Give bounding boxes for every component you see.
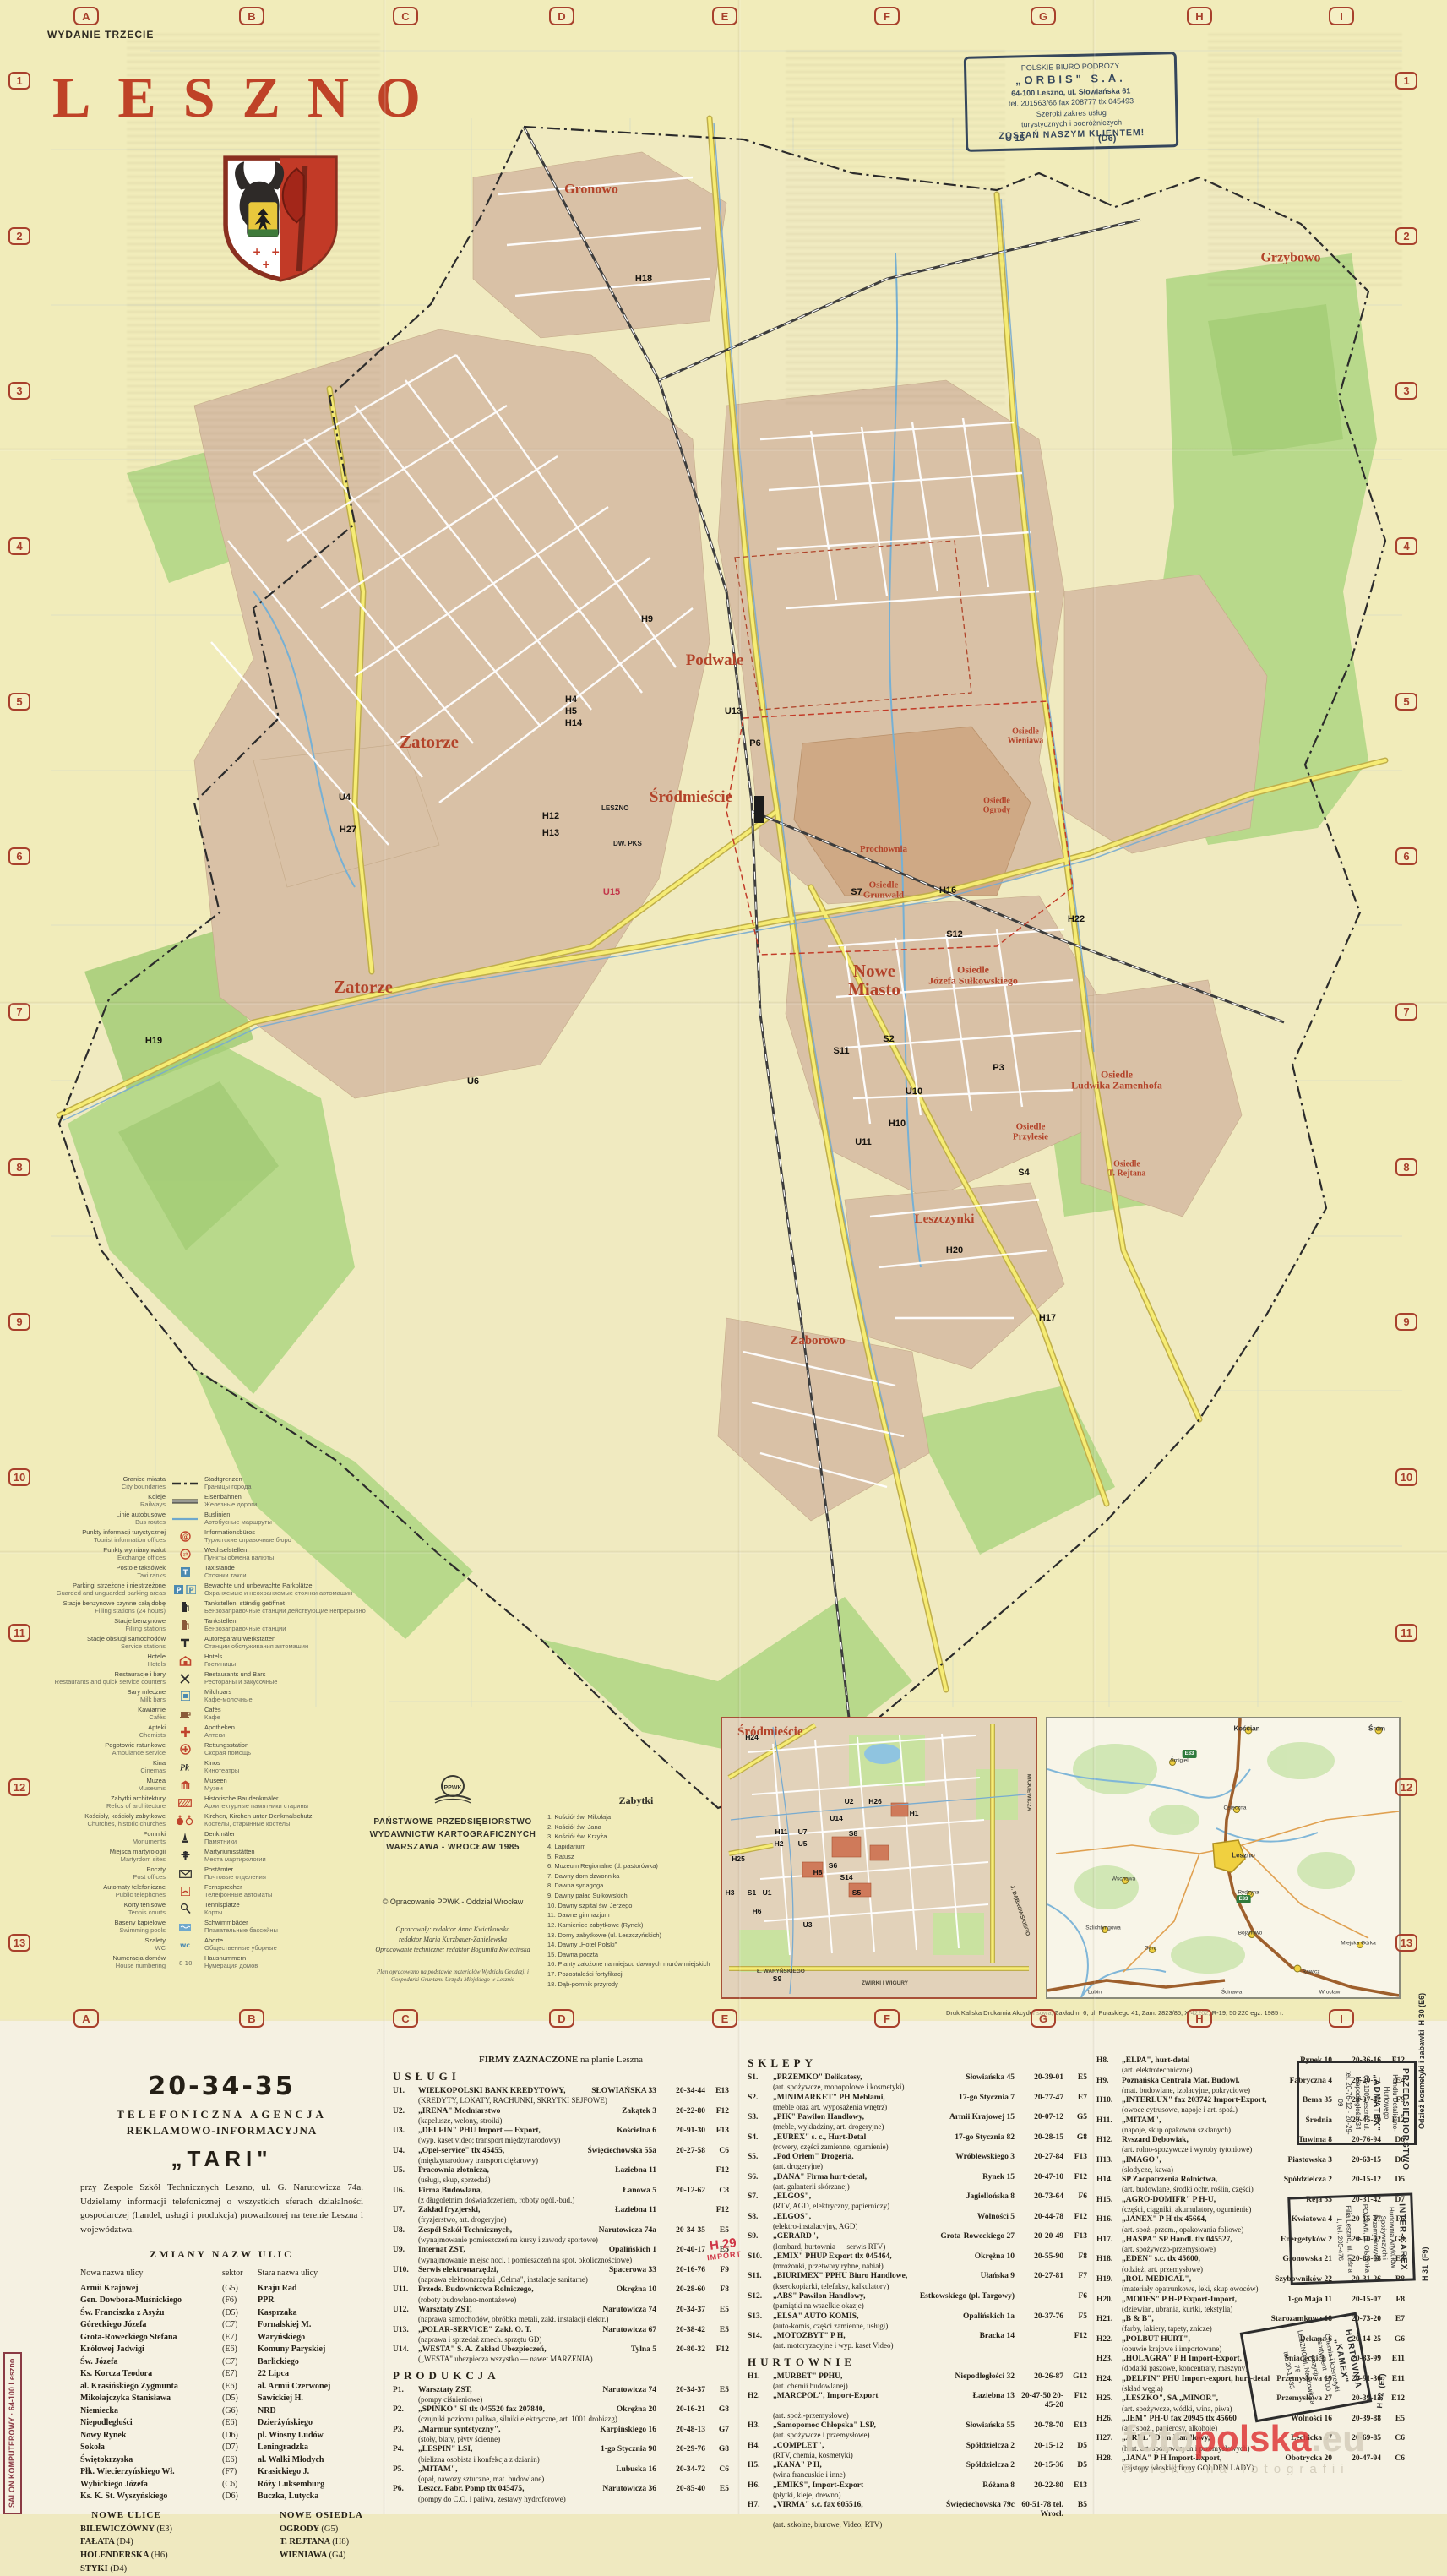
- entry-name: „IRENA" Modniarstwo: [418, 2107, 500, 2116]
- entry-phone: [1015, 2292, 1063, 2301]
- directory-entry-U14: U14.„WESTA" S. A. Zakład Ubezpieczeń,Tyl…: [393, 2345, 729, 2364]
- source-note: Plan opracowano na podstawie materiałów …: [365, 1969, 541, 1985]
- entry-grid-ref: C6: [1381, 2434, 1405, 2443]
- svg-text:PPWK: PPWK: [444, 1785, 462, 1791]
- entry-code: H19.: [1096, 2275, 1122, 2285]
- inset-marker-S1: S1: [748, 1888, 756, 1897]
- museum-icon: [166, 1780, 204, 1789]
- poi-marker-S2: S2: [883, 1034, 894, 1044]
- legend-row: Linie autobusoweBus routesBuslinienАвтоб…: [49, 1510, 380, 1528]
- tari-column: 20-34-35 TELEFONICZNA AGENCJA REKLAMOWO-…: [80, 2021, 363, 2576]
- legend-row: Stacje benzynowe czynne całą dobęFilling…: [49, 1598, 380, 1616]
- poi-marker-H9: H9: [641, 614, 653, 624]
- entry-phone: 20-39-01: [1015, 2073, 1063, 2083]
- tari-name: „TARI": [80, 2146, 363, 2172]
- credit-line: redaktor Maria Kurzbauer-Zanielewska: [365, 1935, 541, 1945]
- legend-row: Baseny kąpieloweSwimming poolsSchwimmbäd…: [49, 1918, 380, 1936]
- sector-ref: (F6): [222, 2295, 258, 2307]
- poi-marker-H17: H17: [1039, 1313, 1056, 1323]
- entry-code: P6.: [393, 2485, 418, 2494]
- sector-ref: (E6): [222, 2344, 258, 2356]
- entry-address: Estkowskiego (pl. Targowy): [915, 2292, 1015, 2301]
- sector-ref: (E6): [222, 2417, 258, 2430]
- district-label: Osiedle T. Rejtana: [1108, 1161, 1146, 1179]
- entry-head: U9.Internat ZST,Opalińskich 120-40-17E5: [393, 2246, 729, 2255]
- entry-code: U4.: [393, 2147, 418, 2156]
- inset-marker-S6: S6: [829, 1861, 837, 1870]
- legend-label-de-ru: HotelsГостиницы: [204, 1653, 380, 1668]
- edition-label: WYDANIE TRZECIE: [47, 29, 154, 41]
- entry-head: U1.WIELKOPOLSKI BANK KREDYTOWY,SŁOWIAŃSK…: [393, 2087, 729, 2096]
- new-estates-header: NOWE OSIEDLA: [280, 2510, 363, 2520]
- entry-head: U4.„Opel-service" tlx 45455,Święciechows…: [393, 2147, 729, 2156]
- district-label: Grzybowo: [1260, 252, 1320, 266]
- new-street-name: Św. Józefa: [80, 2356, 222, 2369]
- entry-description: (międzynarodowy transport ciężarowy): [393, 2156, 729, 2165]
- grid-number-13: 13: [1395, 1934, 1417, 1952]
- entry-name: Pracownia złotnicza,: [418, 2166, 489, 2176]
- entry-address: Narutowicza 74a: [594, 2226, 656, 2236]
- entry-grid-ref: C8: [705, 2187, 729, 2196]
- sector-ref: (G6): [222, 2405, 258, 2418]
- monument-item: 5. Ratusz: [547, 1852, 725, 1862]
- column-header: Nowa nazwa ulicy: [80, 2268, 222, 2280]
- entry-grid-ref: E11: [1381, 2355, 1405, 2364]
- entry-code: S8.: [748, 2213, 773, 2222]
- entry-name: „ELGOS",: [773, 2192, 811, 2202]
- entry-description: (RTV, chemia, kosmetyki): [748, 2451, 1087, 2459]
- entry-description: (rowery, części zamienne, ogumienie): [748, 2143, 1087, 2151]
- sector-ref: (C7): [222, 2356, 258, 2369]
- entry-phone: 20-20-49: [1015, 2232, 1063, 2241]
- grid-number-12: 12: [1395, 1778, 1417, 1796]
- legend-row: PocztyPost officesPostämterПочтовые отде…: [49, 1865, 380, 1882]
- legend-label-pl-en: KinaCinemas: [49, 1760, 166, 1774]
- entry-address: Łaziebna 13: [968, 2392, 1015, 2410]
- entry-grid-ref: D5: [1381, 2176, 1405, 2185]
- grid-letter-A: A: [73, 7, 99, 25]
- grid-number-3: 3: [1395, 382, 1417, 400]
- poi-marker-U4: U4: [339, 792, 351, 803]
- entry-grid-ref: E5: [1063, 2073, 1087, 2083]
- new-item: WIENIAWA (G4): [280, 2549, 363, 2562]
- entry-grid-ref: F12: [1063, 2173, 1087, 2182]
- entry-address: Spacerowa 33: [604, 2266, 656, 2275]
- new-item: OGRODY (G5): [280, 2523, 363, 2536]
- legend-label-de-ru: MilchbarsКафе-молочные: [204, 1689, 380, 1703]
- directory-entry-P6: P6.Leszcz. Fabr. Pomp tlx 045475,Narutow…: [393, 2485, 729, 2503]
- poi-marker-S12: S12: [946, 929, 963, 939]
- monument-item: 18. Dąb-pomnik przyrody: [547, 1980, 725, 1990]
- old-street-name: PPR: [258, 2295, 363, 2307]
- district-label: Zaborowo: [790, 1335, 846, 1348]
- entry-name: „Opel-service" tlx 45455,: [418, 2147, 504, 2156]
- monument-item: 16. Planty założone na miejscu dawnych m…: [547, 1959, 725, 1969]
- legend-label-de-ru: Tankstellen, ständig geöffnetБензозаправ…: [204, 1600, 380, 1615]
- svg-text:+: +: [271, 245, 280, 258]
- legend-label-pl-en: Zabytki architekturyRelics of architectu…: [49, 1795, 166, 1810]
- orbis-travel-agency-stamp: POLSKIE BIURO PODRÓŻY „ORBIS" S.A. 64-10…: [964, 52, 1178, 151]
- legend-label-de-ru: AutoreparaturwerkstättenСтанции обслужив…: [204, 1636, 380, 1650]
- entry-name: „EMIKS", Import-Export: [773, 2481, 863, 2491]
- sector-ref: (E6): [222, 2381, 258, 2394]
- legend-row: KawiarnieCafésCafésКафе: [49, 1705, 380, 1723]
- entry-head: P1.Warsztaty ZST,Narutowicza 7420-34-37E…: [393, 2386, 729, 2395]
- grid-letter-H: H: [1187, 7, 1212, 25]
- entry-phone: 20-12-62: [656, 2187, 705, 2196]
- old-street-name: Kasprzaka: [258, 2307, 363, 2320]
- street-changes-header-row: Nowa nazwa ulicysektorStara nazwa ulicy: [80, 2268, 363, 2280]
- milkbar-icon: [166, 1691, 204, 1701]
- monument-item: 17. Pozostałości fortyfikacji: [547, 1969, 725, 1980]
- entry-description: (art. spożywcze i przemysłowe): [748, 2431, 1087, 2439]
- legend-label-pl-en: Stacje benzynowe czynne całą dobęFilling…: [49, 1600, 166, 1615]
- entry-description: („WESTA" ubezpiecza wszystko — nawet MAR…: [393, 2355, 729, 2363]
- entry-address: Jagiellońska 8: [961, 2192, 1015, 2202]
- martyr-icon: [166, 1850, 204, 1861]
- town-label-Ścinawa: Ścinawa: [1221, 1990, 1243, 1996]
- church-icon: [166, 1815, 204, 1826]
- street-change-row: Świętokrzyska(E6)al. Walki Młodych: [80, 2454, 363, 2467]
- entry-code: H24.: [1096, 2375, 1122, 2384]
- pump24-icon: [166, 1602, 204, 1613]
- town-label-Wrocław: Wrocław: [1319, 1990, 1341, 1996]
- entry-phone: 20-29-76: [656, 2445, 705, 2454]
- directory-entry-H27: H27.„AREL" Dom Handlowy,Lechicka 5720-69…: [1096, 2434, 1405, 2453]
- entry-name: „INTERLUX" fax 203742 Import-Export,: [1122, 2096, 1267, 2105]
- entry-name: „ELSA" AUTO KOMIS,: [773, 2312, 858, 2322]
- legend-label-de-ru: BuslinienАвтобусные маршруты: [204, 1511, 380, 1526]
- entry-head: S6.„DANA" Firma hurt-detal,Rynek 1520-47…: [748, 2173, 1087, 2182]
- entry-address: Narutowicza 74: [597, 2306, 656, 2315]
- directory-entry-S8: S8.„ELGOS",Wolności 520-44-78F12(elektro…: [748, 2213, 1087, 2231]
- entry-name: „PIK" Pawilon Handlowy,: [773, 2113, 864, 2122]
- pool-icon: [166, 1924, 204, 1931]
- monument-item: 15. Dawna poczta: [547, 1950, 725, 1960]
- street-change-row: Mikołajczyka Stanisława(D5)Sawickiej H.: [80, 2393, 363, 2405]
- entry-head: H20.„MODES" P H-P Export-Import,1-go Maj…: [1096, 2296, 1405, 2305]
- entry-code: U14.: [393, 2345, 418, 2355]
- entry-phone: [656, 2166, 705, 2176]
- monument-item: 14. Dawny „Hotel Polski": [547, 1940, 725, 1950]
- old-street-name: al. Walki Młodych: [258, 2454, 363, 2467]
- entry-name: „AGRO-DOMIFR" P H-U,: [1122, 2196, 1216, 2205]
- entry-grid-ref: E5: [705, 2485, 729, 2494]
- entry-name: „PRZEMKO" Delikatesy,: [773, 2073, 862, 2083]
- entry-phone: 20-34-37: [656, 2306, 705, 2315]
- entry-phone: 20-16-76: [656, 2266, 705, 2275]
- legend-label-pl-en: MuzeaMuseums: [49, 1778, 166, 1792]
- entry-code: H28.: [1096, 2454, 1122, 2464]
- legend-label-pl-en: Granice miastaCity boundaries: [49, 1476, 166, 1490]
- old-street-name: Sawickiej H.: [258, 2393, 363, 2405]
- new-item: FAŁATA (D4): [80, 2535, 172, 2549]
- entry-phone: 20-39-88: [1332, 2415, 1381, 2424]
- entry-code: U3.: [393, 2127, 418, 2136]
- entry-code: S5.: [748, 2153, 773, 2162]
- entry-grid-ref: F13: [705, 2127, 729, 2136]
- housenum-icon: 8 10: [166, 1959, 204, 1966]
- town-label-Kościan: Kościan: [1233, 1725, 1259, 1733]
- legend-label-de-ru: AborteОбщественные уборные: [204, 1937, 380, 1952]
- tari-subtitle: REKLAMOWO-INFORMACYJNA: [80, 2124, 363, 2138]
- entry-description: (pompy ciśnieniowe): [393, 2395, 729, 2404]
- entry-address: 17-go Stycznia 7: [954, 2094, 1015, 2103]
- town-label-Bojanowo: Bojanowo: [1238, 1931, 1263, 1936]
- shops-column: SKLEPY S1.„PRZEMKO" Delikatesy,Słowiańsk…: [748, 2021, 1087, 2530]
- grid-number-1: 1: [8, 72, 30, 90]
- entry-head: H28.„JANA" P H Import-Export,Obotrycka 2…: [1096, 2454, 1405, 2464]
- grid-letter-E: E: [712, 7, 737, 25]
- new-street-name: Św. Franciszka z Asyżu: [80, 2307, 222, 2320]
- entry-address: Narutowicza 67: [597, 2326, 656, 2335]
- entry-address: Opalińskich 1: [604, 2246, 656, 2255]
- hurtownie-header: HURTOWNIE: [748, 2355, 1087, 2369]
- entry-description: (meble, wykładziny, art. drogeryjne): [748, 2122, 1087, 2131]
- grid-letter-A: A: [73, 2009, 99, 2028]
- new-item: HOLENDERSKA (H6): [80, 2549, 172, 2562]
- entry-name: „EMIX" PHUP Export tlx 045464,: [773, 2252, 892, 2262]
- entry-phone: [1015, 2332, 1063, 2341]
- district-label: Leszczynki: [915, 1213, 975, 1227]
- poi-marker-S7: S7: [851, 887, 862, 897]
- entry-code: H4.: [748, 2442, 773, 2451]
- svg-text:@: @: [182, 1533, 188, 1540]
- firms-header: FIRMY ZAZNACZONE na planie Leszna: [393, 2055, 729, 2065]
- entry-grid-ref: F6: [1063, 2192, 1087, 2202]
- entry-description: (mrożonki, przetwory rybne, nabiał): [748, 2262, 1087, 2270]
- phone-icon: [166, 1887, 204, 1896]
- old-street-name: Róży Luksemburg: [258, 2479, 363, 2492]
- entry-address: 1-go Maja 11: [1282, 2296, 1332, 2305]
- entry-name: „ELGOS",: [773, 2213, 811, 2222]
- legend-label-de-ru: Bewachte und unbewachte ParkplätzeОхраня…: [204, 1582, 380, 1597]
- entry-code: S10.: [748, 2252, 773, 2262]
- town-label-Osieczna: Osieczna: [1223, 1805, 1246, 1811]
- entry-phone: 20-15-12: [1015, 2442, 1063, 2451]
- directory-entry-U6: U6.Firma Budowlana,Łanowa 520-12-62C8(z …: [393, 2187, 729, 2205]
- entry-grid-ref: C6: [1381, 2454, 1405, 2464]
- entry-address: Święciechowska 79c: [941, 2501, 1015, 2519]
- entry-head: S4.„EUREX" s. c., Hurt-Detal17-go Styczn…: [748, 2133, 1087, 2143]
- directory-entry-S12: S12.„ABS" Pawilon Handlowy,Estkowskiego …: [748, 2292, 1087, 2311]
- entry-description: (art. galanterii skórzanej): [748, 2182, 1087, 2191]
- monuments-title: Zabytki: [547, 1794, 725, 1807]
- wc-icon: wc: [166, 1941, 204, 1948]
- legend-label-pl-en: Automaty telefonicznePublic telephones: [49, 1884, 166, 1898]
- directory-entry-U10: U10.Serwis elektronarzędzi,Spacerowa 332…: [393, 2266, 729, 2285]
- directory-entry-S13: S13.„ELSA" AUTO KOMIS,Opalińskich 1a20-3…: [748, 2312, 1087, 2331]
- grid-number-10: 10: [1395, 1468, 1417, 1486]
- svg-text:⇄: ⇄: [182, 1551, 188, 1558]
- entry-description: (art. szkolne, biurowe, Video, RTV): [748, 2520, 1087, 2529]
- entry-description: (art. spoż., papierosy, alkohole): [1096, 2424, 1405, 2432]
- legend-row: KinaCinemasPkKinosКинотеатры: [49, 1758, 380, 1776]
- entry-code: S12.: [748, 2292, 773, 2301]
- grid-letter-G: G: [1031, 2009, 1056, 2028]
- publisher-line: WYDAWNICTW KARTOGRAFICZNYCH: [365, 1828, 541, 1841]
- entry-description: (art. spożywcze, monopolowe i kosmetyki): [748, 2083, 1087, 2091]
- rail-icon: [166, 1499, 204, 1504]
- sector-ref: (G5): [222, 2283, 258, 2296]
- legend-row: Kościoły, kościoły zabytkoweChurches, hi…: [49, 1811, 380, 1829]
- directory-entry-H26: H26.„JEM" PH-U fax 20945 tlx 45660Wolnoś…: [1096, 2415, 1405, 2433]
- entry-code: H13.: [1096, 2156, 1122, 2165]
- inset-marker-H26: H26: [868, 1797, 882, 1805]
- entry-grid-ref: G8: [705, 2405, 729, 2415]
- inset-marker-H24: H24: [745, 1733, 759, 1741]
- entry-phone: 20-40-17: [656, 2246, 705, 2255]
- entry-code: H6.: [748, 2481, 773, 2491]
- entry-address: Różana 8: [977, 2481, 1015, 2491]
- old-street-name: pl. Wiosny Ludów: [258, 2430, 363, 2443]
- entry-name: „EUREX" s. c., Hurt-Detal: [773, 2133, 866, 2143]
- new-street-name: Niepodległości: [80, 2417, 222, 2430]
- district-label: Osiedle Józefa Sułkowskiego: [928, 964, 1018, 985]
- hotel-icon: [166, 1656, 204, 1666]
- poi-marker-H4: H4: [565, 694, 577, 705]
- entry-name: „JANA" P H Import-Export,: [1122, 2454, 1221, 2464]
- legend-label-pl-en: Miejsca martyrologiiMartyrdom sites: [49, 1849, 166, 1863]
- svg-text:P: P: [188, 1587, 193, 1594]
- inter-carex-caption: H 31 (F9): [1421, 2247, 1429, 2281]
- legend-label-pl-en: AptekiChemists: [49, 1724, 166, 1739]
- directory-entry-P5: P5.„MITAM",Lubuska 1620-34-72C6(opał, na…: [393, 2465, 729, 2484]
- street-change-row: Grota-Roweckiego Stefana(E7)Waryńskiego: [80, 2332, 363, 2345]
- entry-phone: [656, 2206, 705, 2215]
- grid-number-9: 9: [1395, 1313, 1417, 1331]
- entry-description: (art. budowlane, środki ochr. roślin, cz…: [1096, 2185, 1405, 2193]
- entry-code: H9.: [1096, 2077, 1122, 2086]
- district-label: Podwale: [686, 652, 744, 669]
- entry-name: „POLBUT-HURT",: [1122, 2335, 1190, 2345]
- district-label: Osiedle Ogrody: [983, 798, 1011, 815]
- legend-label-de-ru: CafésКафе: [204, 1707, 380, 1721]
- monument-item: 10. Dawny szpital św. Jerzego: [547, 1901, 725, 1911]
- old-street-name: Kraju Rad: [258, 2283, 363, 2296]
- entry-phone: 20-22-80: [1015, 2481, 1063, 2491]
- page-title: LESZNO: [52, 64, 448, 131]
- entry-name: „HOLAGRA" P H Import-Export,: [1122, 2355, 1242, 2364]
- tennis-icon: [166, 1903, 204, 1914]
- entry-code: H22.: [1096, 2335, 1122, 2345]
- legend-label-de-ru: Kirchen, Kirchen unter DenkmalschutzКост…: [204, 1813, 380, 1827]
- entry-description: (lombard, hurtownia — serwis RTV): [748, 2242, 1087, 2251]
- directory-entry-S3: S3.„PIK" Pawilon Handlowy,Armii Krajowej…: [748, 2113, 1087, 2132]
- inset-marker-H8: H8: [813, 1868, 823, 1876]
- legend-label-de-ru: FernsprecherТелефонные автоматы: [204, 1884, 380, 1898]
- new-street-name: Niemiecka: [80, 2405, 222, 2418]
- map-sheet: WYDANIE TRZECIE LESZNO +++ POLSKIE BIURO…: [0, 0, 1447, 2019]
- entry-description: (z długoletnim doświadczeniem, roboty og…: [393, 2196, 729, 2204]
- directory-entry-P4: P4.„LESPIN" LSI,1-go Stycznia 9020-29-76…: [393, 2445, 729, 2464]
- inset-marker-U3: U3: [803, 1920, 813, 1929]
- entry-name: WIELKOPOLSKI BANK KREDYTOWY,: [418, 2087, 565, 2096]
- entry-head: S2.„MINIMARKET" PH Meblami,17-go Styczni…: [748, 2094, 1087, 2103]
- entry-phone: 20-69-85: [1332, 2434, 1381, 2443]
- entry-address: Okrężna 10: [970, 2252, 1015, 2262]
- poi-marker-H18: H18: [635, 274, 652, 284]
- entry-code: U6.: [393, 2187, 418, 2196]
- district-label: Osiedle Ludwika Zamenhofa: [1071, 1069, 1162, 1090]
- inset-marker-H6: H6: [753, 1907, 762, 1915]
- entry-code: H20.: [1096, 2296, 1122, 2305]
- entry-description: (art. motoryzacyjne i wyp. kaset Video): [748, 2341, 1087, 2350]
- entry-phone: 20-27-84: [1015, 2153, 1063, 2162]
- district-label: Nowe Miasto: [848, 961, 900, 999]
- directory-entry-U13: U13.„POLAR-SERVICE" Zakł. O. T.Narutowic…: [393, 2326, 729, 2345]
- entry-head: H26.„JEM" PH-U fax 20945 tlx 45660Wolnoś…: [1096, 2415, 1405, 2424]
- entry-head: P3.„Marmur syntetyczny",Karpińskiego 162…: [393, 2426, 729, 2435]
- directory-entry-S10: S10.„EMIX" PHUP Export tlx 045464,Okrężn…: [748, 2252, 1087, 2271]
- monument-item: 4. Lapidarium: [547, 1842, 725, 1852]
- entry-head: H4.„COMPLET",Spółdzielcza 220-15-12D5: [748, 2442, 1087, 2451]
- info-icon: @: [166, 1531, 204, 1542]
- inset-marker-S8: S8: [849, 1829, 857, 1838]
- legend-row: Numeracja domówHouse numbering8 10Hausnu…: [49, 1953, 380, 1971]
- directory-entry-P3: P3.„Marmur syntetyczny",Karpińskiego 162…: [393, 2426, 729, 2444]
- entry-phone: 20-80-32: [656, 2345, 705, 2355]
- directory-entry-H3: H3.„Samopomoc Chłopska" LSP,Słowiańska 5…: [748, 2421, 1087, 2440]
- directory-entry-S4: S4.„EUREX" s. c., Hurt-Detal17-go Styczn…: [748, 2133, 1087, 2152]
- road-number-badge: E83: [1183, 1750, 1197, 1758]
- poi-marker-H22: H22: [1068, 914, 1085, 924]
- sklepy-list: S1.„PRZEMKO" Delikatesy,Słowiańska 4520-…: [748, 2073, 1087, 2350]
- entry-phone: 20-38-42: [656, 2326, 705, 2335]
- entry-name: „Samopomoc Chłopska" LSP,: [773, 2421, 876, 2431]
- entry-head: P2.„SPINKO" SI tlx 045520 fax 207840,Okr…: [393, 2405, 729, 2415]
- entry-name: Poznańska Centrala Mat. Budowl.: [1122, 2077, 1240, 2086]
- entry-grid-ref: E7: [1063, 2094, 1087, 2103]
- legend-label-de-ru: Restaurants und BarsРестораны и закусочн…: [204, 1671, 380, 1686]
- service-icon: [166, 1638, 204, 1648]
- legend-label-de-ru: Historische BaudenkmälerАрхитектурные па…: [204, 1795, 380, 1810]
- railway-station-label: LESZNO: [601, 804, 628, 812]
- entry-name: „EDEN" s.c. tlx 45600,: [1122, 2255, 1200, 2264]
- relic-icon: [166, 1799, 204, 1807]
- new-street-name: Nowy Rynek: [80, 2430, 222, 2443]
- entry-address: Łanowa 5: [617, 2187, 656, 2196]
- svg-text:+: +: [262, 258, 270, 270]
- entry-description: (kserokopiarki, telefaksy, kalkulatory): [748, 2282, 1087, 2290]
- entry-code: U5.: [393, 2166, 418, 2176]
- entry-name: „ABS" Pawilon Handlowy,: [773, 2292, 866, 2301]
- entry-grid-ref: E13: [1063, 2481, 1087, 2491]
- entry-description: (hurt. art. spożywczych i przemysłowych): [1096, 2444, 1405, 2453]
- entry-code: P2.: [393, 2405, 418, 2415]
- new-item: BILEWICZÓWNY (E3): [80, 2523, 172, 2536]
- entry-code: U10.: [393, 2266, 418, 2275]
- town-label-Leszno: Leszno: [1232, 1852, 1255, 1860]
- grid-number-9: 9: [8, 1313, 30, 1331]
- post-icon: [166, 1870, 204, 1878]
- entry-description: (auto-komis, części zamienne, usługi): [748, 2322, 1087, 2330]
- leszno-map-sheet: { "sheet": { "edition": "WYDANIE TRZECIE…: [0, 0, 1447, 2514]
- entry-grid-ref: F12: [705, 2107, 729, 2116]
- simex-stamp: SALON KOMPUTEROWY · 64-100 Leszno: [3, 2352, 22, 2514]
- old-street-name: Buczka, Lutycka: [258, 2491, 363, 2503]
- entry-grid-ref: E7: [1381, 2315, 1405, 2324]
- entry-head: S1.„PRZEMKO" Delikatesy,Słowiańska 4520-…: [748, 2073, 1087, 2083]
- entry-head: U12.Warsztaty ZST,Narutowicza 7420-34-37…: [393, 2306, 729, 2315]
- directory-entry-H4: H4.„COMPLET",Spółdzielcza 220-15-12D5(RT…: [748, 2442, 1087, 2460]
- town-label-Rawicz: Rawicz: [1303, 1969, 1320, 1975]
- monument-item: 9. Dawny pałac Sułkowskich: [547, 1891, 725, 1901]
- entry-description: (art. rolno-spożywcze i wyroby tytoniowe…: [1096, 2145, 1405, 2154]
- street-change-row: Armii Krajowej(G5)Kraju Rad: [80, 2283, 363, 2296]
- poi-marker-U13: U13: [725, 706, 742, 716]
- legend-label-de-ru: MuseenМузеи: [204, 1778, 380, 1792]
